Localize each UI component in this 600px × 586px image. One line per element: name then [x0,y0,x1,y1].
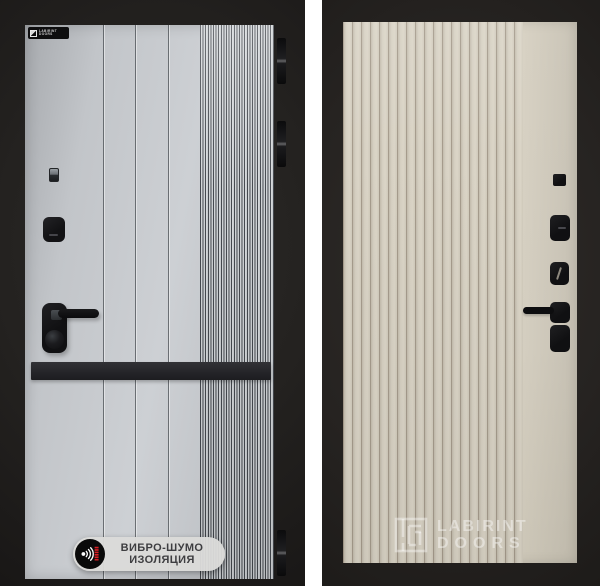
badge-line2: ИЗОЛЯЦИЯ [105,554,219,566]
door-handle-lever [523,307,554,314]
left-door-groove [103,25,104,579]
sound-insulation-badge: ВИБРО-ШУМО ИЗОЛЯЦИЯ [73,537,225,571]
watermark-text: LABIRINT DOORS [437,518,528,552]
hinge-icon [277,38,286,84]
hinge-icon [277,121,286,167]
badge-text: ВИБРО-ШУМО ИЗОЛЯЦИЯ [105,542,225,566]
lock-knob [45,330,64,349]
right-door-fluted-texture [343,22,523,563]
lock-block-keyway [550,262,569,285]
left-door-leaf: LABIRINT DOORS [25,25,274,579]
peephole [49,168,59,182]
peephole-square [553,174,566,186]
lock-block-upper [550,215,570,241]
badge-line1: ВИБРО-ШУМО [105,542,219,554]
brand-plate-text: LABIRINT DOORS [39,30,57,37]
right-door-leaf: LABIRINT DOORS [343,22,577,563]
upper-lock [43,217,65,242]
hinge-icon [277,530,286,576]
left-door-groove [135,25,136,579]
watermark-line1: LABIRINT [437,518,528,535]
maze-logo-icon [394,516,428,554]
watermark: LABIRINT DOORS [394,516,528,554]
left-door-groove [168,25,169,579]
left-door-black-band [31,362,271,380]
left-door-ribbed-strip [200,25,274,579]
brand-maze-icon [30,30,37,37]
lock-block-lower [550,325,570,352]
door-handle-lever [58,309,99,318]
left-door-photo: LABIRINT DOORS [0,0,305,586]
product-image: LABIRINT DOORS [0,0,600,586]
watermark-line2: DOORS [437,535,528,552]
brand-plate-line2: DOORS [39,33,57,36]
vibration-sound-waves-icon [75,539,105,569]
right-door-photo: LABIRINT DOORS [322,0,600,586]
brand-plate: LABIRINT DOORS [28,27,69,39]
